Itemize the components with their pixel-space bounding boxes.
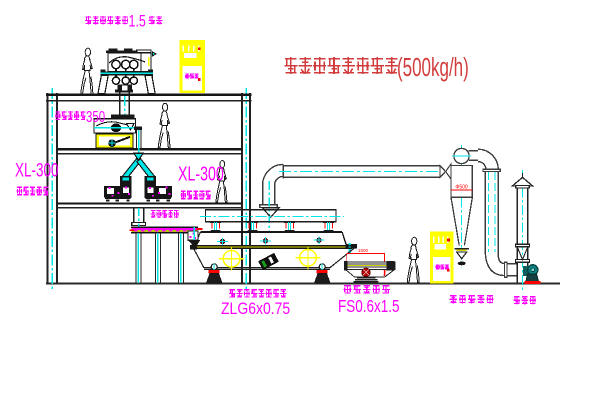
svg-text:(500kg/h): (500kg/h) [397,52,469,82]
svg-text:1500: 1500 [358,248,369,253]
svg-text:FS0.6x1.5: FS0.6x1.5 [338,297,400,316]
svg-text:ZLG6x0.75: ZLG6x0.75 [221,300,290,318]
svg-text:XL-300: XL-300 [15,159,58,181]
svg-text:1.5: 1.5 [129,13,146,31]
svg-text:XL-300: XL-300 [178,162,224,185]
svg-text:350: 350 [86,108,106,125]
